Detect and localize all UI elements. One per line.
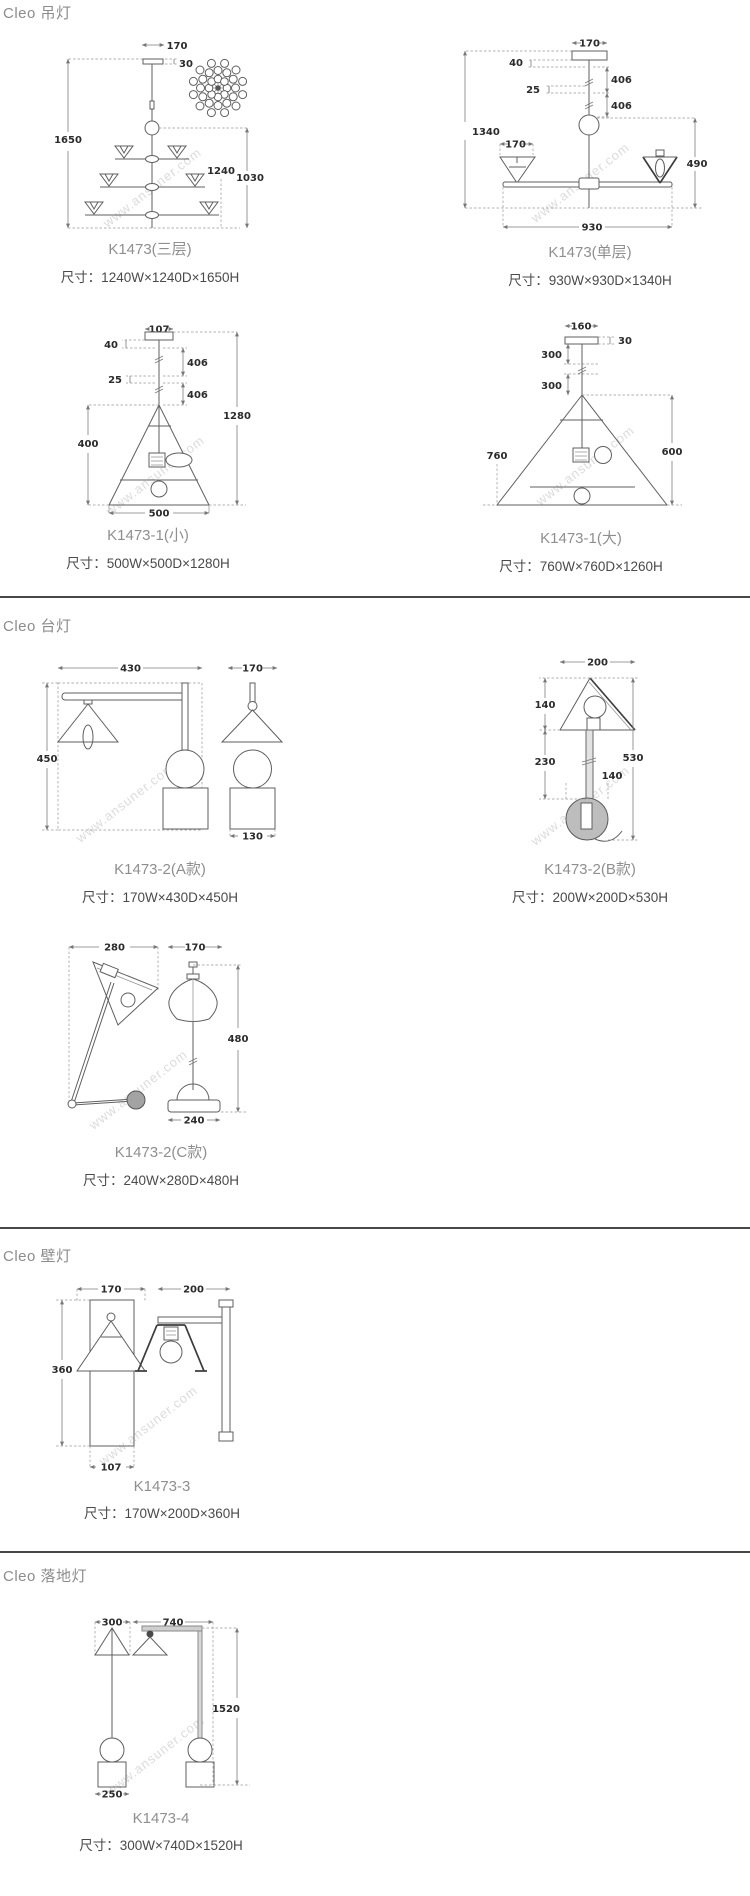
product-name: K1473(单层): [430, 241, 750, 262]
pole: [198, 1631, 202, 1738]
svg-text:490: 490: [687, 159, 708, 170]
svg-text:406: 406: [611, 101, 632, 112]
lamp-body: [483, 344, 682, 505]
svg-text:140: 140: [602, 771, 623, 782]
dimension-width: 1240: [207, 166, 235, 228]
svg-text:300: 300: [541, 350, 562, 361]
svg-text:200: 200: [587, 658, 608, 669]
shade-cone: [133, 1637, 167, 1655]
dimension-height: 360: [52, 1300, 90, 1446]
finial-sphere: [151, 481, 167, 497]
product-caption: K1473-2(B款) 尺寸：200W×200D×530H: [430, 858, 750, 906]
shade-cone: [77, 1321, 145, 1371]
side-view: [135, 1300, 233, 1441]
drawing-pendant-single-tier: 430 1340 170 40 406 25 406: [385, 36, 730, 236]
pole-cap: [189, 962, 197, 967]
svg-text:760: 760: [487, 451, 508, 462]
product-spec: 尺寸：1240W×1240D×1650H: [0, 266, 310, 286]
dimension-base-width: 130: [230, 829, 275, 843]
dimension-plate-width: 107: [90, 1446, 134, 1474]
product-name: K1473-2(B款): [430, 858, 750, 879]
svg-text:170: 170: [505, 140, 526, 151]
product-caption: K1473(单层) 尺寸：930W×930D×1340H: [430, 241, 750, 289]
sphere: [100, 1738, 124, 1762]
svg-text:450: 450: [37, 754, 58, 765]
svg-text:170: 170: [242, 664, 263, 675]
dimension-canopy-height: 30: [598, 336, 632, 347]
front-view: [95, 1628, 129, 1787]
dimension-height: 1520: [200, 1628, 250, 1785]
dimension-depth: 430: [58, 664, 202, 675]
pole: [586, 730, 593, 800]
dimension-front-width: 170: [77, 1285, 145, 1303]
dimension-shade-height: 140: [535, 678, 590, 730]
bulb: [121, 993, 135, 1007]
product-spec: 尺寸：500W×500D×1280H: [0, 552, 308, 572]
svg-text:170: 170: [185, 943, 206, 954]
dimension-body-height: 1030: [159, 128, 264, 228]
svg-text:1340: 1340: [472, 127, 500, 138]
svg-text:40: 40: [509, 58, 523, 69]
svg-text:280: 280: [104, 943, 125, 954]
svg-text:170: 170: [579, 39, 600, 50]
svg-text:1650: 1650: [54, 135, 82, 146]
chandelier-top-view: [189, 59, 246, 116]
svg-text:30: 30: [618, 336, 632, 347]
dimension-shade-width: 170: [500, 140, 533, 156]
svg-text:1240: 1240: [207, 166, 235, 177]
dimension-canopy: 170 30: [142, 41, 193, 70]
dimension-width: 500: [109, 505, 209, 520]
bulb: [160, 1341, 182, 1363]
joint: [187, 974, 199, 979]
shade-cone: [222, 710, 282, 742]
svg-text:1280: 1280: [223, 411, 251, 422]
dimension-canopy-width: 170: [572, 39, 607, 50]
spec-sheet-page: Cleo 吊灯 Cleo 台灯 Cleo 壁灯 Cleo 落地灯 www.ans…: [0, 0, 750, 1896]
joint-ball: [248, 702, 257, 711]
dimension-side-depth: 200: [158, 1285, 230, 1296]
svg-text:140: 140: [535, 700, 556, 711]
svg-text:1030: 1030: [236, 173, 264, 184]
leg: [71, 982, 111, 1102]
sphere: [166, 750, 204, 788]
svg-text:30: 30: [179, 59, 193, 70]
section-divider: [0, 596, 750, 598]
pole: [250, 683, 255, 702]
counterweight: [127, 1091, 145, 1109]
svg-text:1520: 1520: [212, 1704, 240, 1715]
svg-text:406: 406: [611, 75, 632, 86]
section-header-table: Cleo 台灯: [3, 615, 72, 636]
svg-text:40: 40: [104, 340, 118, 351]
wall-bar: [222, 1306, 230, 1433]
section-header-pendant: Cleo 吊灯: [3, 2, 72, 23]
bulb: [584, 696, 606, 718]
stem-sphere: [579, 115, 599, 135]
socket: [100, 963, 118, 977]
wall-bar-cap-bottom: [219, 1432, 233, 1441]
product-spec: 尺寸：200W×200D×530H: [430, 886, 750, 906]
svg-text:930: 930: [582, 223, 603, 234]
front-view: [222, 683, 282, 829]
product-spec: 尺寸：930W×930D×1340H: [430, 269, 750, 289]
product-spec: 尺寸：760W×760D×1260H: [421, 555, 741, 575]
svg-text:160: 160: [571, 322, 592, 333]
arm: [142, 1626, 202, 1631]
product-caption: K1473-1(小) 尺寸：500W×500D×1280H: [0, 524, 308, 572]
canopy: [572, 51, 607, 60]
product-spec: 尺寸：170W×430D×450H: [0, 886, 320, 906]
sphere: [188, 1738, 212, 1762]
canopy: [565, 337, 598, 344]
product-caption: K1473-3 尺寸：170W×200D×360H: [2, 1478, 322, 1522]
product-spec: 尺寸：300W×740D×1520H: [1, 1834, 321, 1854]
svg-text:400: 400: [78, 439, 99, 450]
product-spec: 尺寸：240W×280D×480H: [1, 1169, 321, 1189]
product-caption: K1473-2(C款) 尺寸：240W×280D×480H: [1, 1141, 321, 1189]
product-name: K1473-4: [1, 1810, 321, 1827]
front-view: [77, 1300, 145, 1446]
svg-text:530: 530: [623, 753, 644, 764]
base-plate: [168, 1100, 220, 1112]
bulb: [83, 725, 93, 749]
product-name: K1473-1(小): [0, 524, 308, 545]
svg-text:300: 300: [541, 381, 562, 392]
svg-text:240: 240: [184, 1116, 205, 1127]
dimension-width: 930: [503, 187, 672, 234]
base: [186, 1762, 214, 1787]
product-name: K1473(三层): [0, 238, 310, 259]
product-name: K1473-2(C款): [1, 1141, 321, 1162]
section-divider: [0, 1227, 750, 1229]
svg-text:430: 430: [120, 664, 141, 675]
svg-text:25: 25: [526, 85, 540, 96]
product-caption: K1473-2(A款) 尺寸：170W×430D×450H: [0, 858, 320, 906]
dimension-height: 450: [37, 683, 58, 830]
rod-dimensions: 300 300: [541, 344, 600, 395]
svg-text:250: 250: [102, 1790, 123, 1801]
wall-bar-cap-top: [219, 1300, 233, 1307]
product-name: K1473-1(大): [421, 527, 741, 548]
dimension-canopy-width: 160: [565, 322, 598, 333]
dimension-shade-width: 170: [168, 943, 222, 954]
dimension-base-width: 240: [168, 1116, 220, 1127]
product-caption: K1473-1(大) 尺寸：760W×760D×1260H: [421, 527, 741, 575]
svg-text:480: 480: [228, 1034, 249, 1045]
canopy: [145, 332, 173, 340]
section-header-floor: Cleo 落地灯: [3, 1565, 87, 1586]
svg-text:107: 107: [101, 1463, 122, 1474]
product-caption: K1473(三层) 尺寸：1240W×1240D×1650H: [0, 238, 310, 286]
drawing-table-lamp-c: 280 170: [35, 938, 325, 1133]
side-view: [58, 683, 208, 829]
apex-ball: [107, 1313, 115, 1321]
pole: [182, 683, 188, 750]
drawing-pendant-three-tier: 1650 170 30: [25, 32, 335, 232]
svg-text:130: 130: [242, 832, 263, 843]
dimension-shade-height: 400: [78, 405, 159, 505]
hub: [579, 178, 599, 189]
rod-dimensions: 40 406 25 406: [104, 340, 208, 405]
dimension-shade-width: 200: [560, 658, 635, 669]
arm: [158, 1317, 222, 1323]
drawing-table-lamp-a: 430 170 450: [30, 658, 340, 848]
finial-sphere: [574, 488, 590, 504]
socket: [587, 718, 600, 730]
pole-through-sphere: [581, 803, 592, 829]
svg-text:406: 406: [187, 390, 208, 401]
bulb: [595, 447, 612, 464]
svg-text:360: 360: [52, 1365, 73, 1376]
base: [98, 1762, 126, 1787]
section-divider: [0, 1551, 750, 1553]
foot: [68, 1100, 76, 1108]
rod-dimensions: 40 406 25 406: [509, 58, 632, 117]
drawing-wall-lamp: 170 200 360 107: [40, 1280, 300, 1475]
drawing-table-lamp-b: 200 140 230: [425, 655, 690, 845]
drawing-pendant-large-cone: 160 30 300 300: [390, 318, 690, 523]
shade-right-with-bulb: [643, 150, 677, 183]
drawing-floor-lamp: 300 740 250: [70, 1598, 310, 1808]
side-view: [68, 962, 158, 1109]
dimension-rod-height: 230: [535, 730, 586, 799]
svg-text:200: 200: [183, 1285, 204, 1296]
dimension-total-height: 430 1340: [465, 51, 500, 208]
lamp-body: [500, 60, 677, 208]
drawing-pendant-small-cone: 107 40 406 25 406: [50, 322, 320, 522]
base: [230, 788, 275, 829]
svg-text:25: 25: [108, 375, 122, 386]
side-view: [133, 1626, 214, 1787]
svg-text:600: 600: [662, 447, 683, 458]
svg-text:300: 300: [102, 1618, 123, 1629]
svg-text:230: 230: [535, 757, 556, 768]
lower-arm: [73, 1099, 134, 1103]
stem-sphere: [145, 121, 159, 135]
canopy: [143, 59, 163, 64]
product-caption: K1473-4 尺寸：300W×740D×1520H: [1, 1810, 321, 1854]
socket: [164, 1327, 178, 1340]
front-view: [168, 962, 220, 1112]
bulb: [166, 453, 192, 467]
dimension-base-width: 250: [95, 1790, 129, 1801]
dimension-ball-diameter: 140: [566, 771, 622, 800]
svg-text:170: 170: [101, 1285, 122, 1296]
shade-left-edge: [560, 678, 590, 730]
product-name: K1473-2(A款): [0, 858, 320, 879]
arm: [62, 693, 188, 700]
base: [163, 788, 208, 829]
product-spec: 尺寸：170W×200D×360H: [2, 1502, 322, 1522]
product-name: K1473-3: [2, 1478, 322, 1495]
dimension-total-height: 1280: [173, 332, 251, 505]
section-header-wall: Cleo 壁灯: [3, 1245, 72, 1266]
sphere: [234, 750, 272, 788]
dimension-shade-width: 170: [228, 664, 277, 675]
svg-text:500: 500: [149, 509, 170, 520]
svg-text:170: 170: [167, 41, 188, 52]
svg-text:406: 406: [187, 358, 208, 369]
